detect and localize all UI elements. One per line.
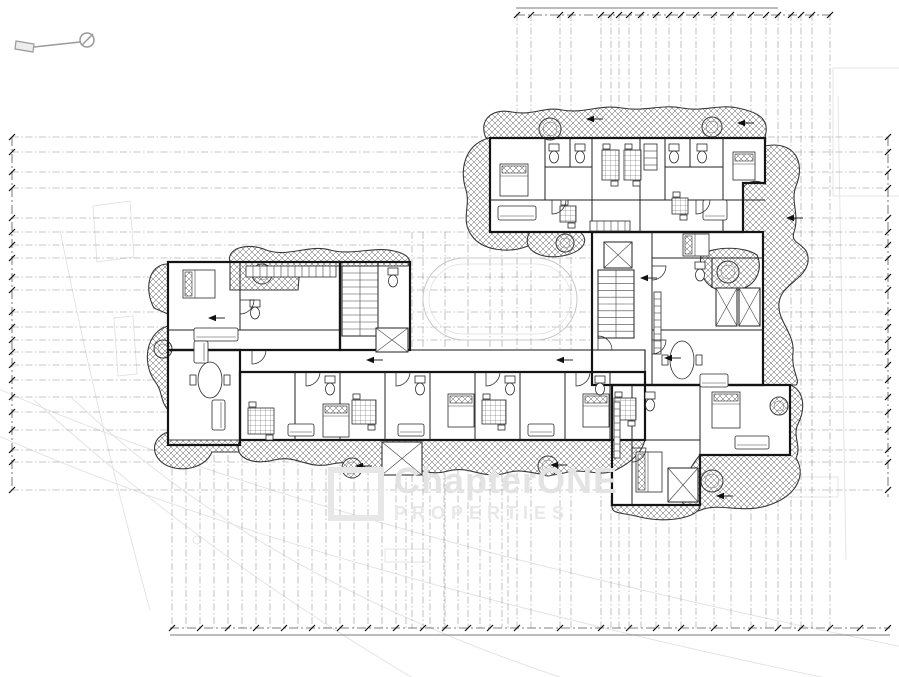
floor-plan-svg xyxy=(0,0,899,677)
floor-plan-page: ChapterONE PROPERTIES xyxy=(0,0,899,677)
key-icon xyxy=(15,33,94,52)
pool-outline xyxy=(423,258,577,340)
